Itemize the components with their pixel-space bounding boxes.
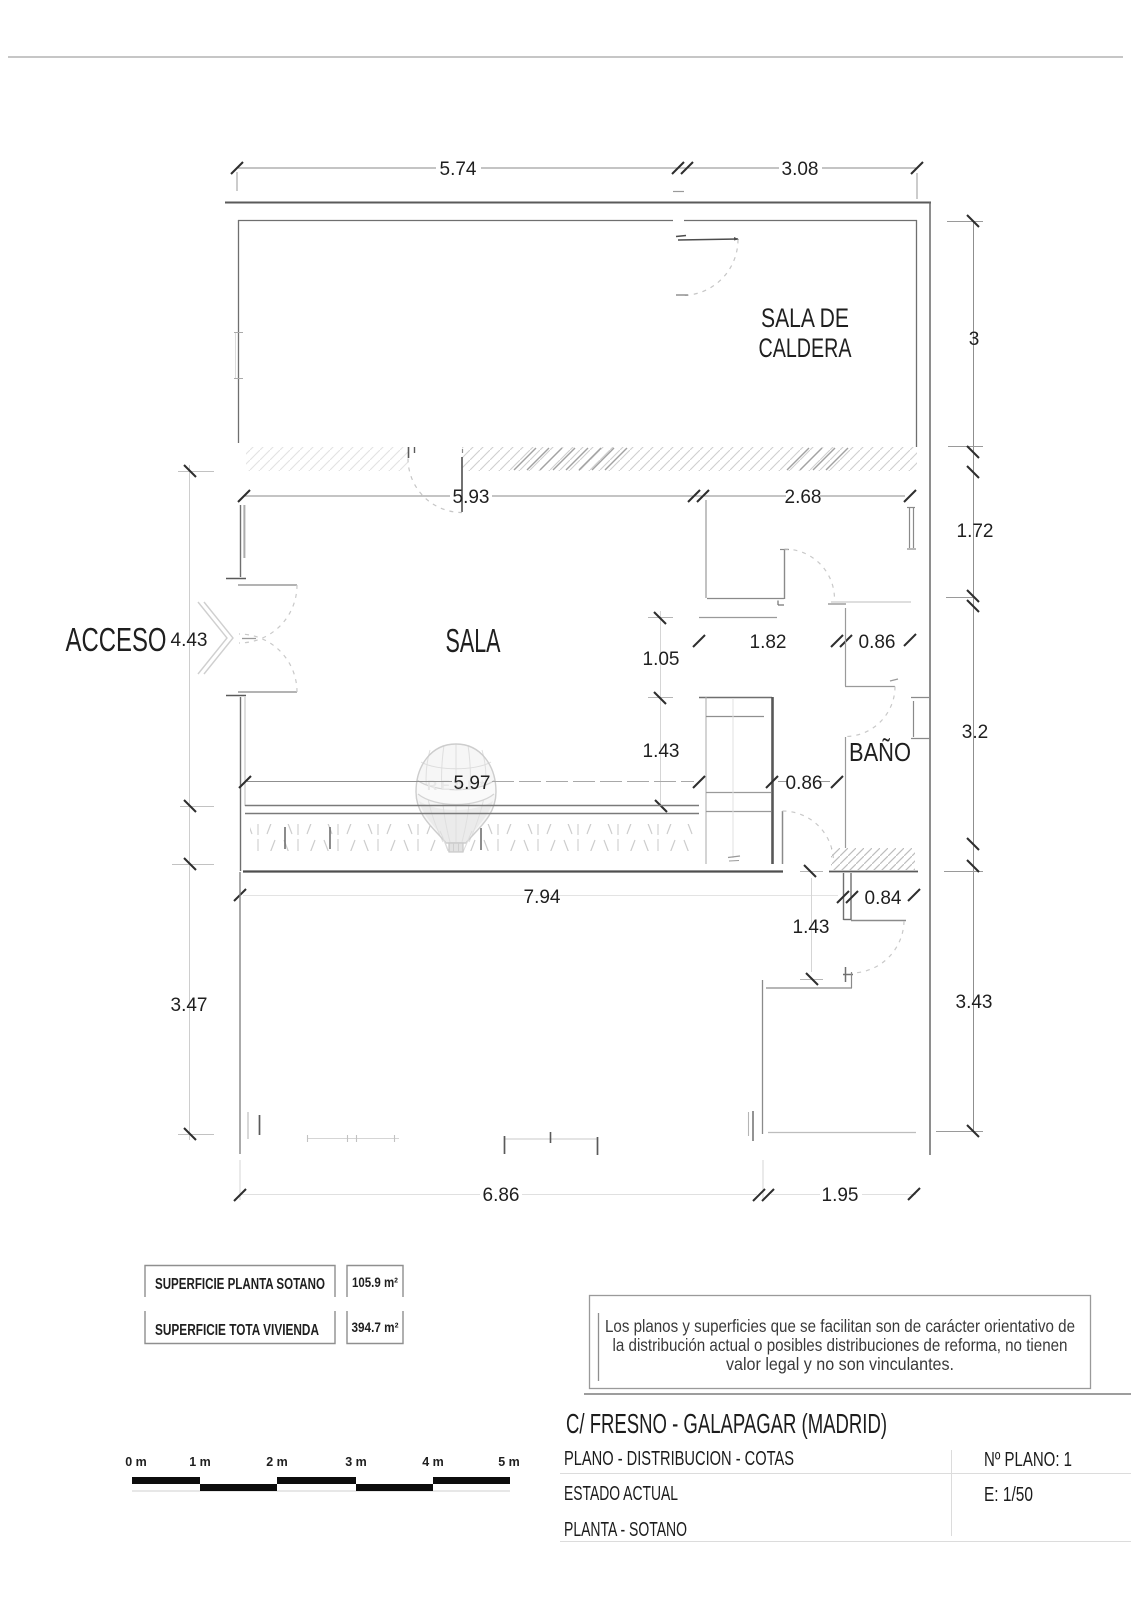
svg-text:Los planos y superficies que s: Los planos y superficies que se facilita… bbox=[605, 1316, 1075, 1336]
svg-text:0.86: 0.86 bbox=[859, 632, 896, 653]
svg-text:valor legal y no son vinculant: valor legal y no son vinculantes. bbox=[726, 1354, 954, 1374]
svg-text:ESTADO ACTUAL: ESTADO ACTUAL bbox=[564, 1483, 678, 1505]
svg-text:2 m: 2 m bbox=[266, 1455, 288, 1469]
svg-text:SUPERFICIE TOTA VIVIENDA: SUPERFICIE TOTA VIVIENDA bbox=[155, 1322, 319, 1339]
svg-text:3.2: 3.2 bbox=[962, 722, 988, 743]
svg-text:4 m: 4 m bbox=[422, 1455, 444, 1469]
svg-text:1.43: 1.43 bbox=[793, 917, 830, 938]
svg-text:0 m: 0 m bbox=[125, 1455, 147, 1469]
svg-text:5 m: 5 m bbox=[498, 1455, 520, 1469]
svg-text:3.43: 3.43 bbox=[956, 992, 993, 1013]
svg-text:6.86: 6.86 bbox=[483, 1185, 520, 1206]
svg-text:E: 1/50: E: 1/50 bbox=[984, 1484, 1033, 1506]
svg-text:3: 3 bbox=[969, 329, 980, 350]
svg-text:2.68: 2.68 bbox=[785, 487, 822, 508]
svg-text:1.82: 1.82 bbox=[750, 632, 787, 653]
svg-text:3.08: 3.08 bbox=[782, 159, 819, 180]
svg-text:la distribución actual o posib: la distribución actual o posibles distri… bbox=[613, 1335, 1068, 1355]
svg-text:3.47: 3.47 bbox=[171, 995, 208, 1016]
svg-text:4.43: 4.43 bbox=[171, 630, 208, 651]
svg-text:1.05: 1.05 bbox=[643, 649, 680, 670]
svg-text:0.84: 0.84 bbox=[865, 888, 902, 909]
svg-text:PLANO - DISTRIBUCION - COT: PLANO - DISTRIBUCION - COTAS bbox=[564, 1448, 794, 1470]
svg-text:394.7 m²: 394.7 m² bbox=[352, 1320, 399, 1335]
svg-text:7.94: 7.94 bbox=[524, 887, 561, 908]
svg-text:SALA DE: SALA DE bbox=[761, 303, 849, 333]
svg-text:C/ FRESNO - GALAPAGAR (MADR: C/ FRESNO - GALAPAGAR (MADRID) bbox=[566, 1408, 887, 1439]
svg-text:PLANTA - SOTANO: PLANTA - SOTANO bbox=[564, 1519, 687, 1541]
svg-text:CALDERA: CALDERA bbox=[759, 333, 852, 363]
svg-text:BAÑO: BAÑO bbox=[849, 737, 911, 767]
svg-text:1.95: 1.95 bbox=[822, 1185, 859, 1206]
svg-text:0.86: 0.86 bbox=[786, 773, 823, 794]
svg-text:SALA: SALA bbox=[446, 622, 501, 659]
svg-text:1 m: 1 m bbox=[189, 1455, 211, 1469]
svg-text:5.93: 5.93 bbox=[453, 487, 490, 508]
svg-text:Nº PLANO: 1: Nº PLANO: 1 bbox=[984, 1449, 1072, 1471]
svg-text:5.74: 5.74 bbox=[440, 159, 477, 180]
svg-text:105.9 m²: 105.9 m² bbox=[352, 1275, 398, 1290]
svg-text:ACCESO: ACCESO bbox=[66, 621, 167, 658]
svg-text:1.72: 1.72 bbox=[957, 521, 994, 542]
svg-text:5.97: 5.97 bbox=[454, 773, 491, 794]
svg-text:1.43: 1.43 bbox=[643, 741, 680, 762]
svg-text:3 m: 3 m bbox=[345, 1455, 367, 1469]
svg-text:SUPERFICIE PLANTA SOTANO: SUPERFICIE PLANTA SOTANO bbox=[155, 1276, 325, 1293]
